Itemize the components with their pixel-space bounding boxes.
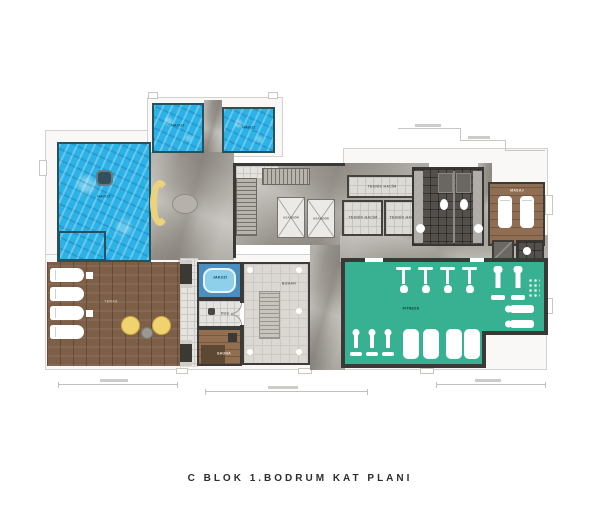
facade-tab — [545, 195, 553, 215]
deck-stone-table — [172, 194, 198, 214]
dimension-text — [468, 136, 490, 139]
facade-tab — [420, 368, 434, 374]
sauna-stove-icon — [228, 333, 237, 342]
side-table — [86, 310, 93, 317]
lounger — [50, 325, 84, 339]
spin-bike-icon — [365, 329, 378, 356]
facade-tab — [39, 160, 47, 176]
steam-light — [247, 267, 253, 273]
sink-icon — [474, 224, 483, 233]
stairs-flight-horizontal — [262, 168, 310, 185]
dumbbell-rack-icon — [528, 278, 540, 298]
bench-press-icon — [510, 305, 534, 313]
spin-bike-icon — [349, 329, 362, 356]
gym-door — [470, 258, 484, 262]
facade-tab — [176, 368, 188, 374]
sun-deck: TERAS — [47, 262, 180, 366]
curved-bench — [150, 180, 170, 226]
gym-wall-step-v — [482, 331, 486, 368]
pool-top-right-label: HAVUZ — [242, 126, 255, 130]
massage-table — [520, 196, 534, 228]
toilet-icon — [440, 199, 448, 210]
umbrella-table — [121, 316, 140, 335]
core-wall-left — [233, 163, 236, 258]
shower-label: DUŞ — [221, 312, 229, 316]
pool-top-left-label: HAVUZ — [171, 124, 184, 128]
weight-machine-icon — [510, 266, 525, 300]
elevator-b-label: ASANSÖR — [313, 217, 329, 220]
wc-divider — [453, 171, 455, 243]
dimension-step — [398, 128, 460, 129]
spa-wall-upper — [178, 260, 192, 288]
exercise-mat — [446, 329, 462, 359]
pool-top-left: HAVUZ — [152, 103, 204, 153]
technical-room-left-label: TEKNİK HACİM — [348, 216, 377, 220]
treadmill-icon — [462, 267, 477, 293]
dimension-text — [475, 379, 501, 382]
steam-room: BUHAR — [242, 262, 310, 365]
stairs-flight-vertical — [236, 178, 257, 236]
deck-stool — [141, 327, 153, 339]
elevator-b: ASANSÖR — [307, 199, 335, 238]
lounger — [50, 287, 84, 301]
plan-title: C BLOK 1.BODRUM KAT PLANI — [0, 473, 600, 484]
jacuzzi-label: JAKUZİ — [212, 276, 226, 280]
facade-tab — [268, 92, 278, 99]
dimension-text — [415, 124, 441, 127]
steam-light — [296, 349, 302, 355]
technical-room-top: TEKNİK HACİM — [347, 175, 417, 198]
steam-label: BUHAR — [282, 282, 296, 286]
dimension-step — [505, 140, 506, 150]
dimension-line — [436, 384, 546, 386]
sun-deck-label: TERAS — [104, 300, 117, 304]
massage-room-label: MASAJ — [510, 189, 524, 193]
lounger — [50, 268, 84, 282]
main-pool-label: HAVUZ — [97, 195, 110, 199]
sink-icon — [416, 224, 425, 233]
steam-light — [296, 308, 302, 314]
pool-walkway — [204, 100, 222, 156]
treadmill-icon — [418, 267, 433, 293]
elevator-a-label: ASANSÖR — [283, 216, 299, 219]
dimension-text — [268, 386, 298, 389]
shower-fixture — [208, 308, 215, 315]
exercise-mat — [403, 329, 419, 359]
jacuzzi-tub — [203, 268, 236, 293]
fitness-label: FITNESS — [403, 307, 420, 311]
massage-table — [498, 196, 512, 228]
spa-corridor — [310, 245, 345, 370]
spa-wall-lower — [178, 340, 192, 366]
dimension-step — [460, 140, 505, 141]
gym-door — [365, 258, 383, 262]
gym-wall-right — [544, 258, 548, 335]
toilet-icon — [460, 199, 468, 210]
steam-platform — [259, 291, 280, 339]
lounger — [50, 306, 84, 320]
wc-stall-left — [438, 173, 453, 193]
pool-top-right: HAVUZ — [222, 107, 275, 153]
gym-wall-bottom — [341, 364, 486, 368]
wc-block — [412, 167, 484, 246]
technical-room-top-label: TEKNİK HACİM — [368, 185, 397, 189]
exercise-mat — [423, 329, 439, 359]
umbrella-table — [152, 316, 171, 335]
gym-wall-step — [482, 331, 546, 335]
dimension-step — [460, 128, 461, 140]
jacuzzi-room: JAKUZİ — [197, 262, 242, 299]
wc-stall-right — [456, 173, 471, 193]
sauna-room: SAUNA — [197, 328, 242, 366]
technical-room-left: TEKNİK HACİM — [342, 200, 383, 236]
floor-plan: HAVUZ HAVUZ HAVUZ ASANSÖR ASANSÖR TEKNİK… — [0, 0, 600, 512]
elevator-a: ASANSÖR — [277, 197, 305, 238]
spin-bike-icon — [381, 329, 394, 356]
exercise-mat — [464, 329, 480, 359]
dimension-line — [205, 391, 368, 393]
pool-island — [96, 170, 113, 186]
steam-light — [247, 349, 253, 355]
kids-pool — [58, 231, 106, 261]
toilet-icon — [523, 247, 531, 255]
treadmill-icon — [440, 267, 455, 293]
sauna-label: SAUNA — [217, 352, 231, 356]
weight-machine-icon — [490, 266, 505, 300]
bench-press-icon — [510, 320, 534, 328]
facade-tab — [148, 92, 158, 99]
core-wall-top — [233, 163, 345, 166]
dimension-line — [58, 384, 178, 386]
gym-wall-left — [341, 258, 345, 368]
treadmill-icon — [396, 267, 411, 293]
massage-room: MASAJ — [488, 182, 545, 246]
dimension-text — [100, 379, 128, 382]
side-table — [86, 272, 93, 279]
steam-light — [296, 267, 302, 273]
dimension-step — [505, 150, 545, 151]
